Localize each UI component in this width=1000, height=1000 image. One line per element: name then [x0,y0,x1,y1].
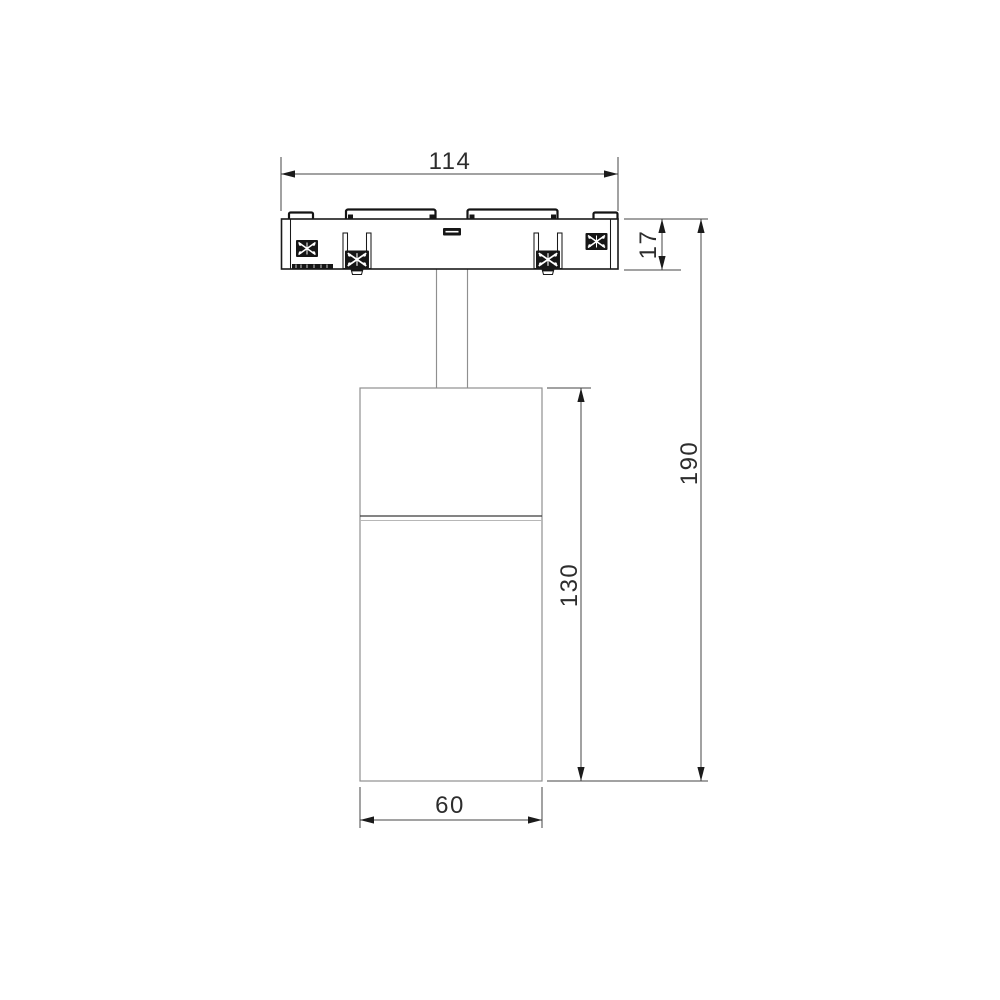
arrow-up-icon [577,388,584,402]
base-housing [282,219,619,269]
dim-base-height-label: 17 [635,230,662,260]
dim-base-height: 17 [624,219,708,270]
dim-total-height-label: 190 [676,441,703,486]
dim-body-height-label: 130 [556,563,583,608]
dim-total-height: 190 [676,219,705,781]
dim-body-width-label: 60 [435,792,465,819]
arrow-down-icon [697,767,704,781]
dim-base-width: 114 [281,148,618,211]
terminal-block-icon [296,240,318,257]
arrow-right-icon [528,816,542,823]
arrow-up-icon [697,219,704,233]
drawing-canvas: 114 17 190 130 [0,0,1000,1000]
arrow-right-icon [604,170,618,177]
arrow-left-icon [281,170,295,177]
technical-drawing: 114 17 190 130 [0,0,1000,1000]
arrow-left-icon [360,816,374,823]
lamp-body-group [360,269,542,781]
dim-body-width: 60 [360,787,542,828]
track-adapter-base [282,210,619,275]
dim-base-width-label: 114 [429,148,472,175]
lamp-body [360,388,542,781]
label-strip-icon [292,264,333,269]
terminal-block-icon [586,233,608,250]
center-slot-icon [443,228,461,236]
arrow-down-icon [577,767,584,781]
